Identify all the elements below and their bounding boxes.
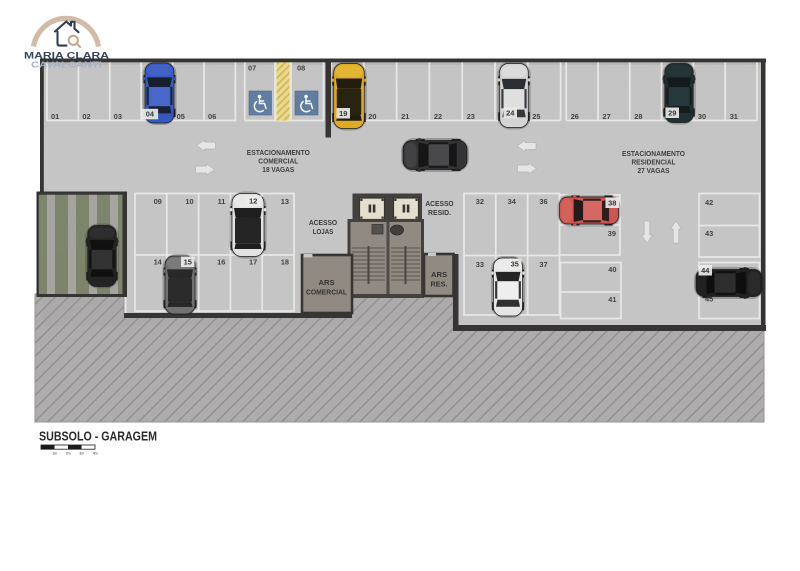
- svg-text:3m: 3m: [79, 452, 84, 456]
- svg-text:SUBSOLO - GARAGEM: SUBSOLO - GARAGEM: [39, 429, 157, 444]
- svg-text:CAVALCANTI: CAVALCANTI: [31, 59, 102, 69]
- svg-text:4m: 4m: [93, 452, 98, 456]
- svg-text:1m: 1m: [52, 452, 57, 456]
- svg-text:2m: 2m: [66, 452, 71, 456]
